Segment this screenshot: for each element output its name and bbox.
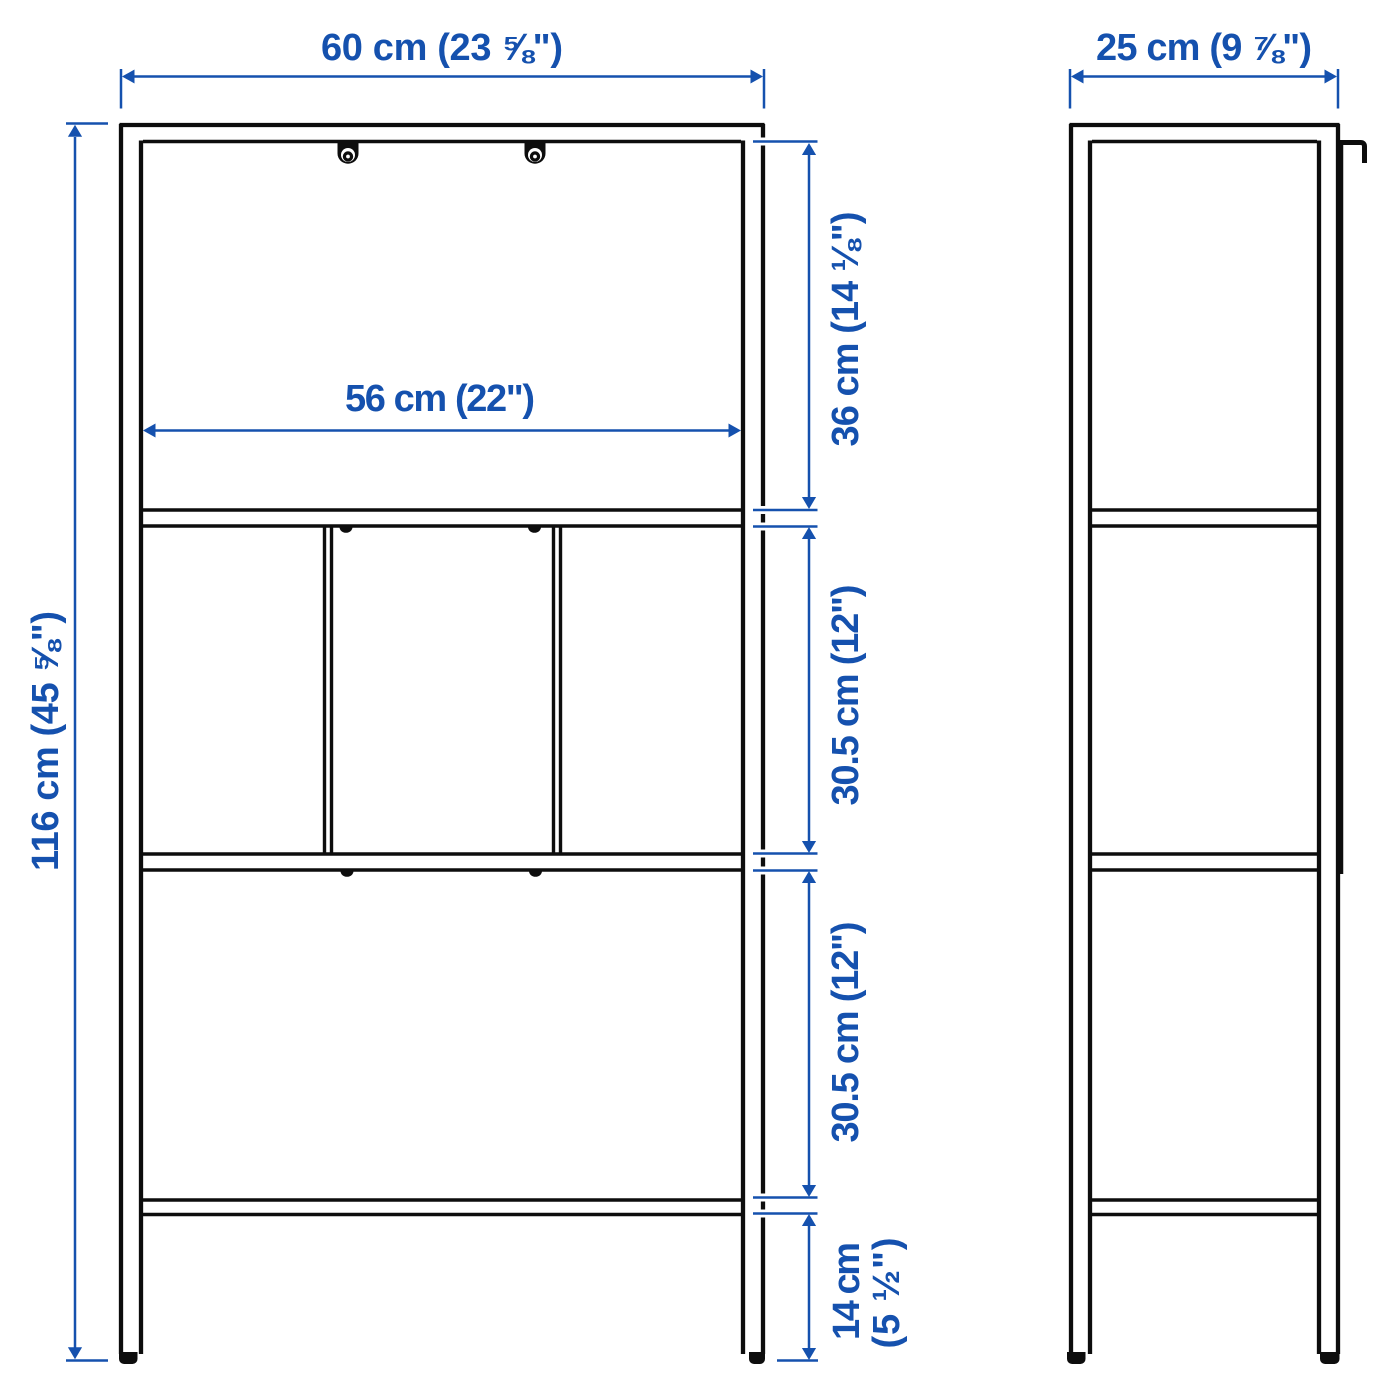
svg-text:25 cm (9 ⅞"): 25 cm (9 ⅞"): [1096, 27, 1312, 69]
svg-text:(5 ½"): (5 ½"): [866, 1238, 908, 1349]
svg-text:60 cm (23 ⅝"): 60 cm (23 ⅝"): [321, 27, 563, 69]
svg-text:30.5 cm (12"): 30.5 cm (12"): [825, 922, 867, 1143]
svg-text:116 cm (45 ⅝"): 116 cm (45 ⅝"): [25, 611, 67, 871]
svg-text:36 cm (14 ⅛"): 36 cm (14 ⅛"): [825, 212, 867, 447]
svg-text:14 cm: 14 cm: [826, 1242, 868, 1340]
svg-text:30.5 cm (12"): 30.5 cm (12"): [825, 585, 867, 806]
svg-text:56 cm (22"): 56 cm (22"): [345, 378, 535, 420]
